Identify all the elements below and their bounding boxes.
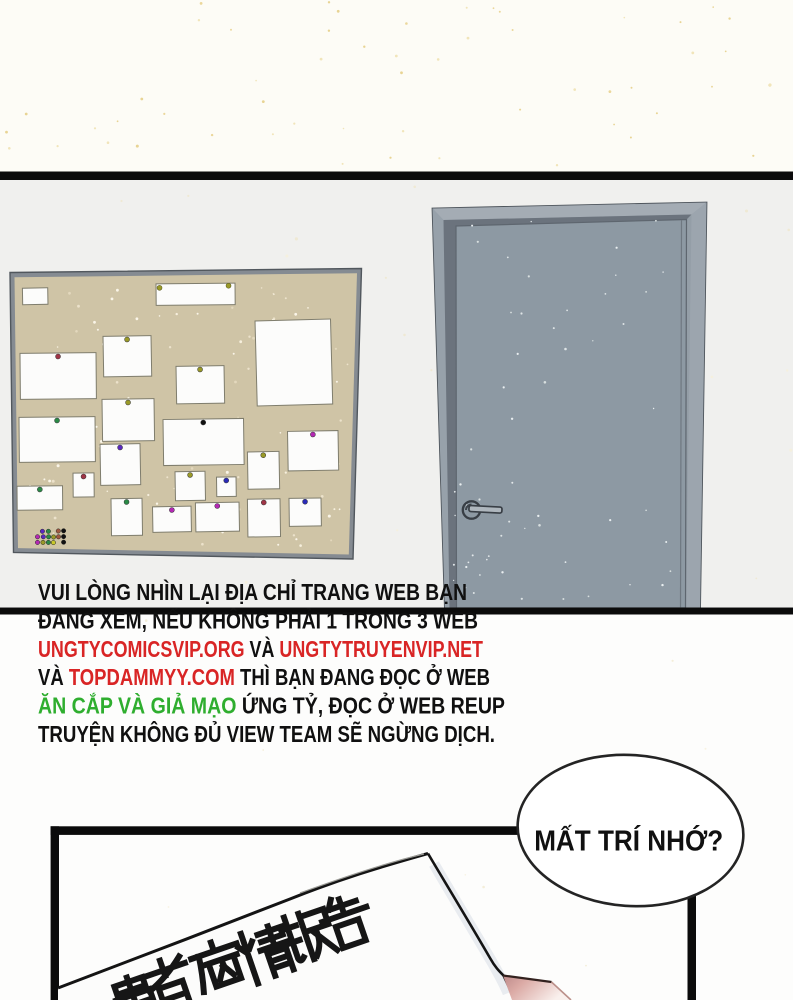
- svg-text:MẤT TRÍ NHỚ?: MẤT TRÍ NHỚ?: [534, 826, 723, 858]
- svg-text:ĂN CẮP VÀ GIẢ MẠO ỨNG TỶ, ĐỌC: ĂN CẮP VÀ GIẢ MẠO ỨNG TỶ, ĐỌC Ở WEB REUP: [38, 691, 505, 719]
- svg-text:UNGTYCOMICSVIP.ORG VÀ UNGTYTRU: UNGTYCOMICSVIP.ORG VÀ UNGTYTRUYENVIP.NET: [38, 635, 483, 662]
- svg-text:TRUYỆN KHÔNG ĐỦ VIEW TEAM SẼ N: TRUYỆN KHÔNG ĐỦ VIEW TEAM SẼ NGỪNG DỊCH.: [38, 719, 495, 747]
- svg-text:VÀ TOPDAMMYY.COM THÌ BẠN ĐANG: VÀ TOPDAMMYY.COM THÌ BẠN ĐANG ĐỌC Ở WEB: [38, 662, 490, 690]
- svg-text:VUI LÒNG NHÌN LẠI ĐỊA CHỈ TRAN: VUI LÒNG NHÌN LẠI ĐỊA CHỈ TRANG WEB BẠN: [38, 577, 467, 605]
- svg-text:ĐANG XEM, NẾU KHÔNG PHẢI 1 TRO: ĐANG XEM, NẾU KHÔNG PHẢI 1 TRONG 3 WEB: [38, 605, 478, 633]
